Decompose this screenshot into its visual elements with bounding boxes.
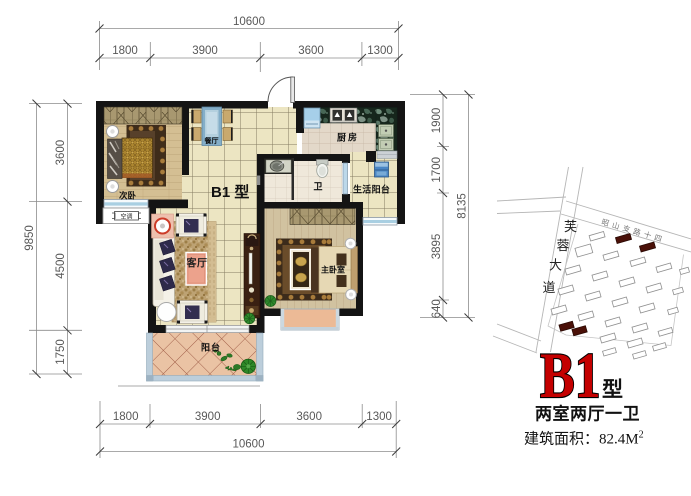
svg-text:空调: 空调: [120, 213, 132, 221]
svg-text:1300: 1300: [367, 45, 393, 57]
svg-text:1800: 1800: [113, 411, 139, 423]
svg-text:次卧: 次卧: [119, 191, 137, 201]
svg-text:3895: 3895: [431, 234, 443, 260]
svg-text:客厅: 客厅: [186, 257, 208, 270]
svg-text:卫: 卫: [314, 182, 323, 192]
svg-text:阳台: 阳台: [201, 342, 221, 353]
svg-text:3600: 3600: [55, 140, 67, 166]
svg-text:9850: 9850: [24, 225, 36, 251]
svg-text:3900: 3900: [192, 45, 218, 57]
svg-text:芙: 芙: [564, 219, 577, 234]
svg-text:型: 型: [602, 379, 623, 402]
svg-text:8135: 8135: [457, 193, 469, 219]
svg-text:B1: B1: [540, 340, 601, 412]
svg-text:10600: 10600: [233, 16, 265, 28]
svg-text:1800: 1800: [112, 45, 138, 57]
svg-text:建筑面积：82.4M2: 建筑面积：82.4M2: [524, 430, 644, 448]
svg-text:厨房: 厨房: [337, 132, 359, 143]
svg-text:4500: 4500: [55, 253, 67, 279]
svg-text:640: 640: [431, 299, 443, 318]
svg-text:1300: 1300: [366, 411, 392, 423]
svg-text:10600: 10600: [233, 439, 265, 451]
svg-text:两室两厅一卫: 两室两厅一卫: [535, 404, 640, 424]
svg-text:餐厅: 餐厅: [204, 136, 219, 145]
svg-text:主卧室: 主卧室: [321, 265, 345, 275]
svg-text:3900: 3900: [195, 411, 221, 423]
svg-text:大: 大: [549, 258, 562, 273]
svg-text:1700: 1700: [431, 157, 443, 183]
svg-text:B1 型: B1 型: [211, 183, 249, 201]
svg-text:3600: 3600: [296, 411, 322, 423]
svg-text:生活阳台: 生活阳台: [353, 184, 390, 195]
svg-text:1750: 1750: [55, 339, 67, 365]
svg-text:1900: 1900: [431, 108, 443, 134]
svg-text:蓉: 蓉: [557, 238, 570, 253]
svg-text:3600: 3600: [298, 45, 324, 57]
svg-text:道: 道: [543, 280, 556, 295]
